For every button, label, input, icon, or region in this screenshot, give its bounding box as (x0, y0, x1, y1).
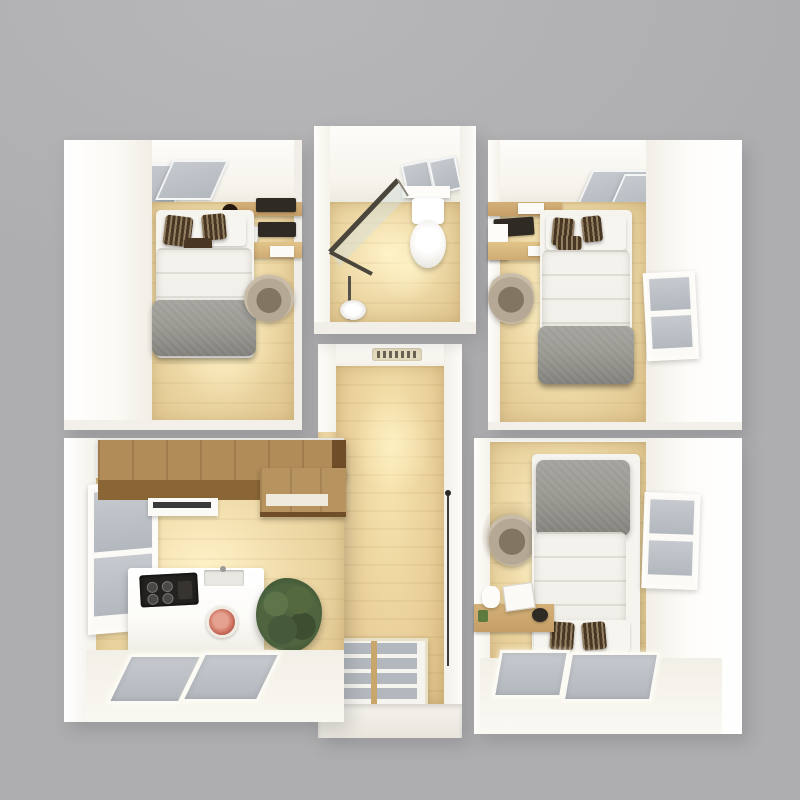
burner-2 (162, 581, 174, 593)
tl-left-wall (64, 140, 152, 430)
tl-shelf-books (256, 198, 296, 212)
br-dark-decor (532, 608, 548, 622)
range-hood-strip (153, 502, 211, 508)
range-hood-shelf (148, 498, 218, 516)
tl-gray-blanket (152, 300, 256, 356)
room-bathroom (314, 126, 476, 334)
black-cooktop (139, 573, 199, 608)
peninsula-counter (260, 468, 346, 517)
br-side-window-pane-1 (649, 499, 694, 535)
br-dark-pillow-2 (581, 621, 607, 651)
tl-dark-pillow-2 (201, 213, 227, 241)
br-floor-skylight-2 (562, 652, 661, 702)
entry-door-mullion (371, 641, 377, 705)
room-kitchen-living (64, 438, 344, 722)
br-desk-lamp (482, 586, 500, 608)
room-bedroom-bottom-right (474, 438, 742, 734)
floor-plan-render (0, 0, 800, 800)
air-vent-slats (377, 351, 417, 358)
tr-dark-pillow-2 (581, 215, 604, 243)
hall-left-wall (318, 344, 336, 432)
bath-bottom-wall (314, 322, 476, 334)
room-bedroom-top-right (488, 140, 742, 430)
br-green-decor (478, 610, 488, 622)
burner-1 (147, 582, 159, 594)
tr-dark-cushion (556, 236, 582, 250)
door-handle-dot (445, 490, 451, 496)
tr-bottom-wall (488, 422, 742, 430)
tl-bottom-wall (64, 420, 302, 430)
air-vent-grille (372, 348, 422, 361)
sliding-door-edge (447, 494, 449, 666)
br-gray-blanket (536, 460, 630, 536)
tl-desk-books (258, 222, 296, 237)
kitchen-sink (204, 570, 244, 586)
potted-plant (256, 578, 322, 652)
peninsula-inner-notch (266, 494, 328, 506)
tr-side-window-pane-2 (651, 315, 693, 349)
cooktop-panel (178, 581, 193, 600)
bath-right-wall (460, 126, 476, 334)
tl-right-wall (294, 140, 302, 430)
tr-side-window-pane-1 (649, 277, 691, 311)
tl-office-chair (244, 274, 294, 322)
decor-plate (206, 606, 238, 638)
tr-gray-blanket (538, 326, 634, 384)
burner-4 (162, 593, 174, 605)
br-side-window (641, 492, 700, 590)
tl-duvet (156, 248, 252, 308)
burner-3 (147, 594, 159, 606)
br-side-window-pane-2 (648, 540, 693, 576)
tr-office-chair (488, 270, 534, 324)
room-bedroom-top-left (64, 140, 302, 430)
br-floor-skylight-1 (492, 650, 570, 698)
tr-side-window (643, 271, 700, 362)
br-laptop (502, 582, 535, 612)
faucet-dot (220, 566, 226, 572)
corner-shower-glass (322, 170, 422, 282)
shower-drain-stool (340, 300, 366, 320)
tl-desk-paper (270, 246, 294, 257)
tr-duvet (542, 250, 630, 330)
br-lounge-chair (488, 512, 536, 566)
